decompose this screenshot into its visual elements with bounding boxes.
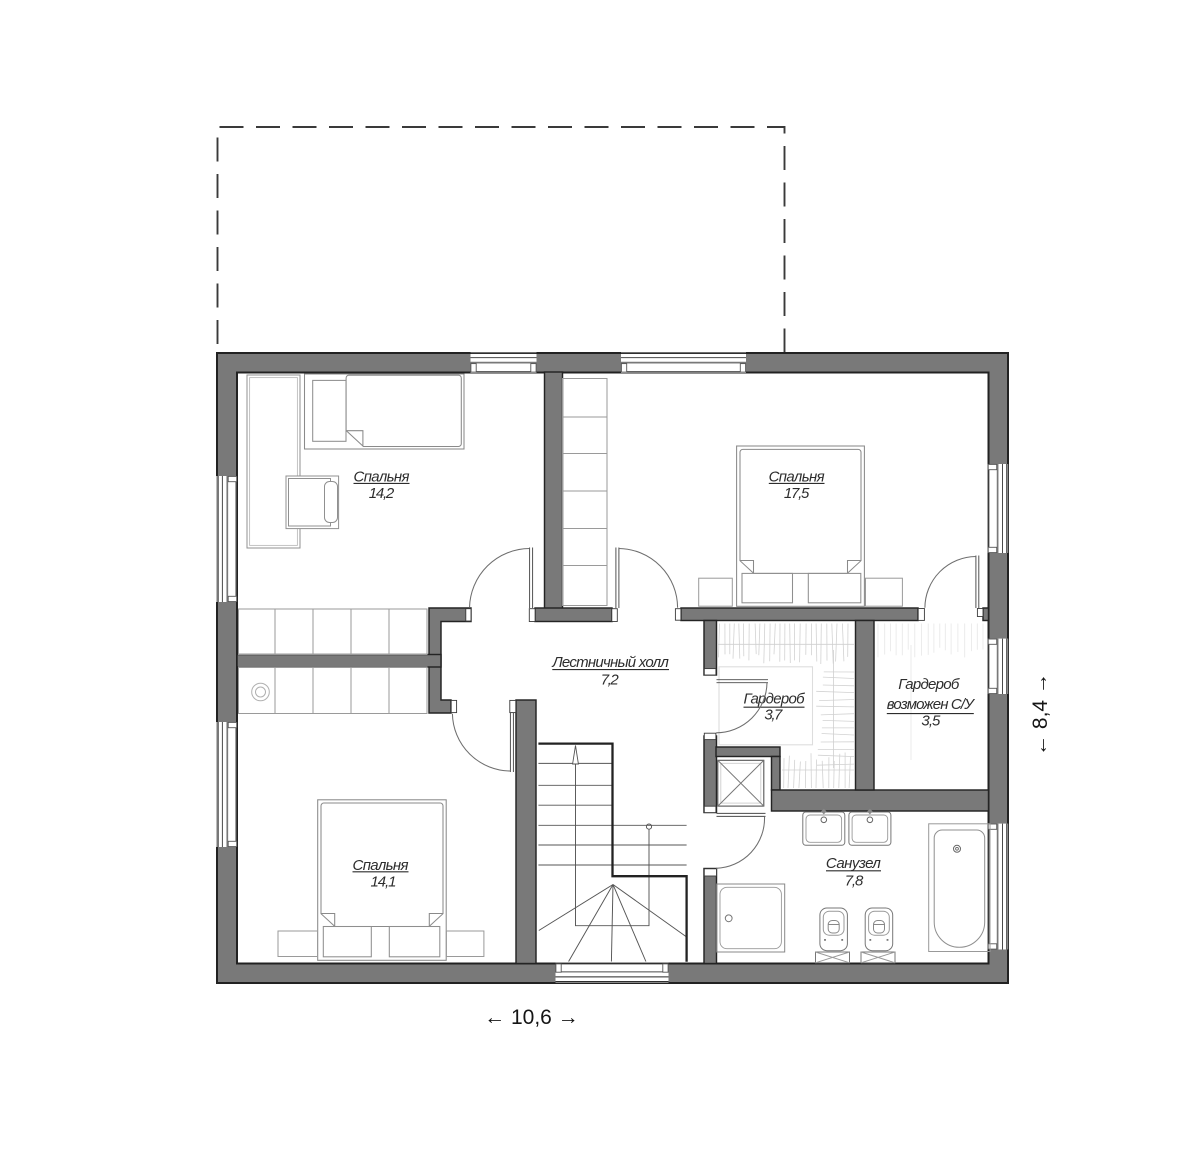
svg-text:← 10,6 →: ← 10,6 →	[484, 1006, 579, 1029]
svg-text:Гардероб: Гардероб	[744, 691, 806, 708]
svg-text:14,1: 14,1	[371, 873, 397, 890]
svg-text:3,7: 3,7	[764, 707, 783, 724]
svg-text:← 8,4 →: ← 8,4 →	[1029, 673, 1052, 756]
svg-text:возможен С/У: возможен С/У	[887, 696, 975, 713]
svg-text:7,8: 7,8	[845, 872, 864, 889]
svg-text:Лестничный холл: Лестничный холл	[551, 654, 669, 671]
svg-text:14,2: 14,2	[369, 485, 395, 502]
svg-text:Гардероб: Гардероб	[898, 676, 960, 693]
svg-text:7,2: 7,2	[601, 672, 620, 689]
svg-text:17,5: 17,5	[784, 485, 810, 502]
svg-text:3,5: 3,5	[921, 712, 941, 729]
svg-text:Санузел: Санузел	[826, 855, 882, 872]
